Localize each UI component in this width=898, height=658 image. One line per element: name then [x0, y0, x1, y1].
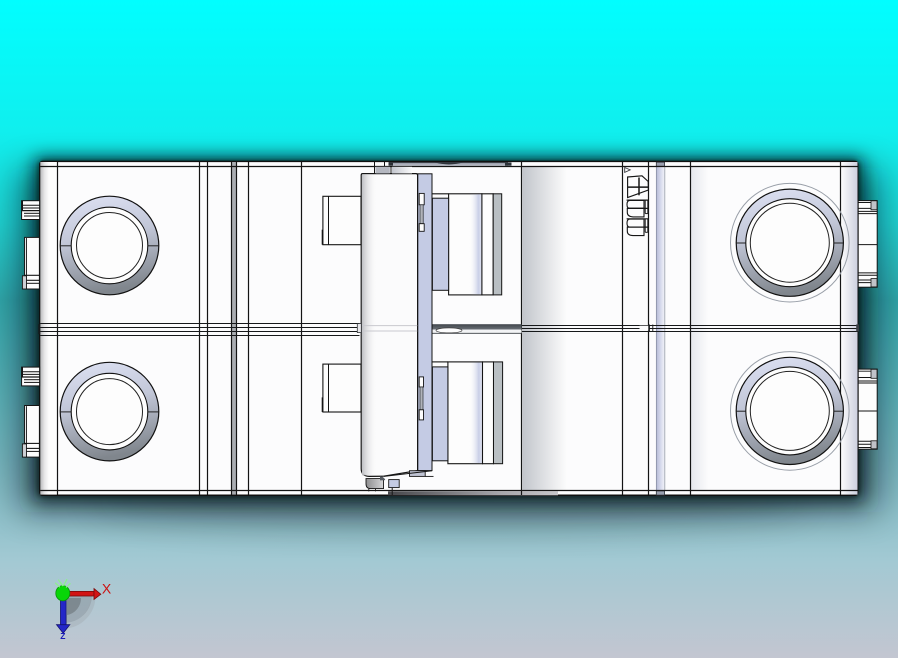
svg-text:X: X	[102, 581, 112, 597]
svg-text:Z: Z	[60, 631, 65, 641]
